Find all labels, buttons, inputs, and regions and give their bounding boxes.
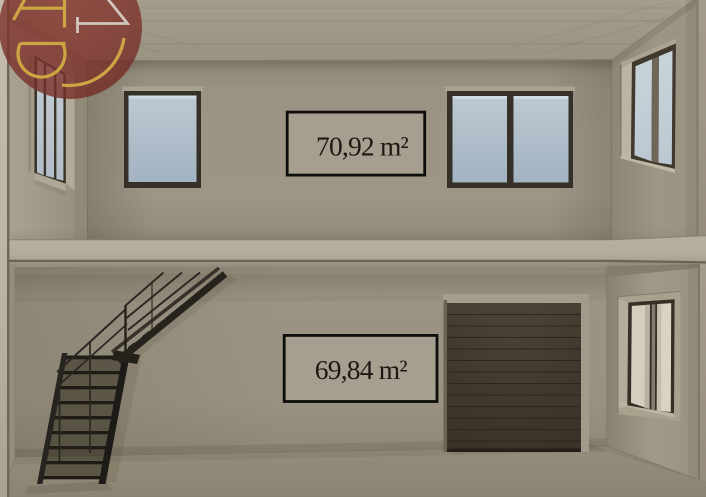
svg-text:69,84 m²: 69,84 m² xyxy=(315,354,408,385)
svg-text:70,92 m²: 70,92 m² xyxy=(316,130,409,161)
